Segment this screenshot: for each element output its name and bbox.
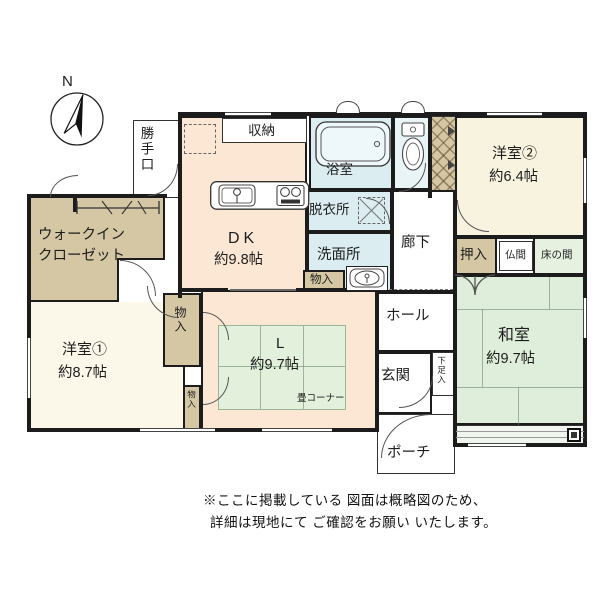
genkan-label: 玄関 — [381, 369, 410, 384]
wic-label-1: ウォークイン — [38, 228, 125, 243]
engawa-line — [456, 431, 584, 432]
bath-label: 浴室 — [326, 163, 353, 177]
window-yoshitsu2-top — [487, 112, 542, 116]
wash-basin-icon — [349, 268, 385, 288]
yoshitsu2-size: 約6.4帖 — [489, 170, 538, 185]
tatami-line — [457, 309, 583, 310]
storm-shutter-box-icon — [567, 428, 581, 442]
washer-pan-icon — [358, 197, 385, 224]
yoshitsu1-size: 約8.7帖 — [58, 366, 107, 381]
disclaimer-line-2: 詳細は現地にて ご確認をお願い いたします。 — [210, 511, 497, 531]
tatami-corner-label: 畳コーナー — [297, 394, 345, 404]
wall-oshiire-top — [453, 235, 587, 239]
porch-label: ポーチ — [387, 446, 431, 461]
datsuijo-label: 脱衣所 — [309, 203, 350, 217]
shoe-cabinet-label: 下足入 — [437, 356, 446, 385]
oshiire-label: 押入 — [460, 248, 487, 262]
closet-hanger-rod-icon — [74, 199, 162, 215]
sliding-door-marker — [448, 160, 455, 170]
storage-lower-label: 物入 — [187, 390, 196, 409]
tatami-line — [457, 387, 583, 388]
toilet-icon — [399, 121, 427, 175]
washitsu-label: 和室 — [498, 328, 530, 344]
wall-dk-left — [178, 112, 182, 298]
compass-north-label: N — [62, 74, 73, 89]
window-engawa — [468, 443, 526, 447]
window-yoshitsu2-right — [583, 158, 587, 203]
oshiire-double-door-swing — [455, 275, 495, 297]
hall-label: ホール — [386, 309, 430, 324]
senmenjo-label: 洗面所 — [317, 248, 361, 263]
toilet-window-icon — [401, 101, 425, 113]
tatami-line — [549, 277, 550, 309]
dk-label: DK — [228, 231, 258, 247]
window-yoshitsu1-left — [27, 338, 31, 398]
living-size: 約9.7帖 — [250, 358, 299, 373]
compass-icon — [48, 90, 106, 148]
wall-genkan-left — [375, 288, 379, 432]
wic-outer-door-swing — [50, 175, 78, 197]
refrigerator-space-icon — [184, 124, 216, 154]
room-yoshitsu1 — [29, 298, 185, 430]
engawa-veranda — [455, 425, 585, 445]
wall-toilet-right — [428, 112, 432, 198]
wall-dk-l-1 — [178, 288, 228, 292]
engawa-line — [456, 437, 584, 438]
floor-plan: N — [0, 0, 600, 600]
window-washitsu-right — [583, 298, 587, 338]
tatami-line — [482, 309, 483, 387]
sliding-opening-dk-l — [230, 289, 296, 291]
butsuma-label: 仏間 — [505, 250, 526, 261]
tatami-line — [518, 387, 519, 425]
room-washitsu — [455, 275, 585, 425]
washroom-storage-label: 物入 — [310, 275, 333, 287]
dk-size: 約9.8帖 — [214, 253, 263, 268]
yoshitsu1-label: 洋室① — [62, 342, 107, 357]
kitchen-storage-label: 収納 — [248, 124, 275, 138]
rouka-hall-boundary — [379, 289, 453, 290]
yoshitsu2-label: 洋室② — [492, 146, 537, 161]
rouka-label: 廊下 — [401, 236, 430, 251]
back-door-label: 勝手口 — [139, 126, 153, 173]
living-label: L — [276, 336, 284, 351]
window-yoshitsu1-bottom — [140, 428, 215, 432]
window-living-bottom — [262, 428, 332, 432]
kitchen-counter-icon — [210, 181, 310, 211]
wall-washitsu-left — [453, 235, 457, 447]
wall-wic-top — [27, 194, 167, 198]
storage-upper-label: 物入 — [174, 306, 186, 334]
washitsu-size: 約9.7帖 — [486, 352, 535, 367]
disclaimer-line-1: ※ここに掲載している 図面は概略図のため、 — [203, 489, 487, 509]
wic-label-2: クローゼット — [38, 249, 125, 264]
bath-window-icon — [336, 101, 360, 113]
sliding-door-marker — [448, 126, 455, 136]
bathtub-icon — [315, 121, 391, 167]
tokonoma-label: 床の間 — [541, 250, 573, 261]
window-dk-top — [225, 112, 271, 116]
